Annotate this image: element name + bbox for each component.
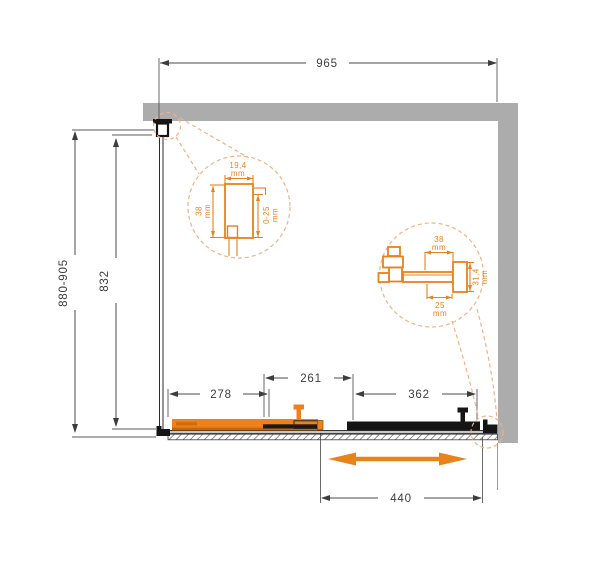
bottom-rail	[157, 431, 498, 440]
dim-362: 362	[355, 389, 477, 420]
dim-965-label: 965	[316, 58, 338, 70]
slide-direction-arrow	[328, 453, 467, 466]
shower-enclosure-drawing: 965 880-905 832 278 261	[0, 0, 600, 564]
dim-278: 278	[168, 389, 269, 417]
detail-roller-body	[383, 257, 403, 268]
detail-rail	[403, 272, 453, 282]
detail-left-adjust-unit: mm	[271, 208, 280, 222]
dim-278-label: 278	[210, 389, 232, 401]
detail-profile-notch	[228, 226, 238, 238]
fixed-panel-dark	[347, 408, 498, 434]
glass-panel-line	[160, 134, 164, 431]
detail-rail-block	[453, 262, 467, 292]
door-edge-profile	[318, 421, 324, 430]
fixed-panel-glass	[347, 422, 480, 431]
wall-bracket-right	[483, 420, 498, 434]
detail-left-height-unit: mm	[203, 204, 212, 218]
rail-hatched-track	[168, 434, 498, 440]
walls	[143, 103, 518, 490]
fixed-panel-knob-stem	[461, 413, 466, 423]
detail-left-drawing: 19,4 mm 38 mm 0-25 mm	[195, 161, 280, 256]
wall-profile-top-left	[153, 119, 172, 136]
detail-right-height-unit: mm	[480, 270, 489, 284]
dim-440-label: 440	[390, 493, 412, 505]
detail-right-drawing: 38 mm 25 mm 31,4 mm	[379, 235, 490, 318]
sliding-door-orange	[172, 405, 323, 431]
side-glass-panel	[160, 134, 164, 431]
technical-drawing-page: 965 880-905 832 278 261	[0, 0, 600, 564]
dim-261: 261	[264, 373, 353, 420]
right-wall	[498, 103, 518, 443]
detail-roller-column	[389, 268, 402, 282]
dim-880-905-label: 880-905	[58, 259, 70, 307]
dim-362-label: 362	[408, 389, 430, 401]
dim-832-label: 832	[99, 270, 111, 292]
fixed-panel-knob-cap	[458, 408, 469, 413]
door-left-end-detail	[176, 422, 197, 426]
door-handle-stem	[297, 410, 302, 420]
door-handle-cap	[294, 405, 305, 410]
detail-roller-foot	[379, 273, 390, 282]
detail-right-depth-unit: mm	[433, 309, 447, 318]
dim-261-label: 261	[300, 373, 322, 385]
wall-profile-channel	[157, 124, 168, 137]
door-overlap-rail	[263, 424, 317, 428]
detail-right-width-unit: mm	[432, 243, 446, 252]
detail-roller-top	[388, 247, 400, 256]
detail-left-width-unit: mm	[231, 169, 245, 178]
dim-832: 832	[99, 135, 156, 429]
dim-440: 440	[321, 433, 483, 505]
top-wall	[143, 103, 518, 121]
